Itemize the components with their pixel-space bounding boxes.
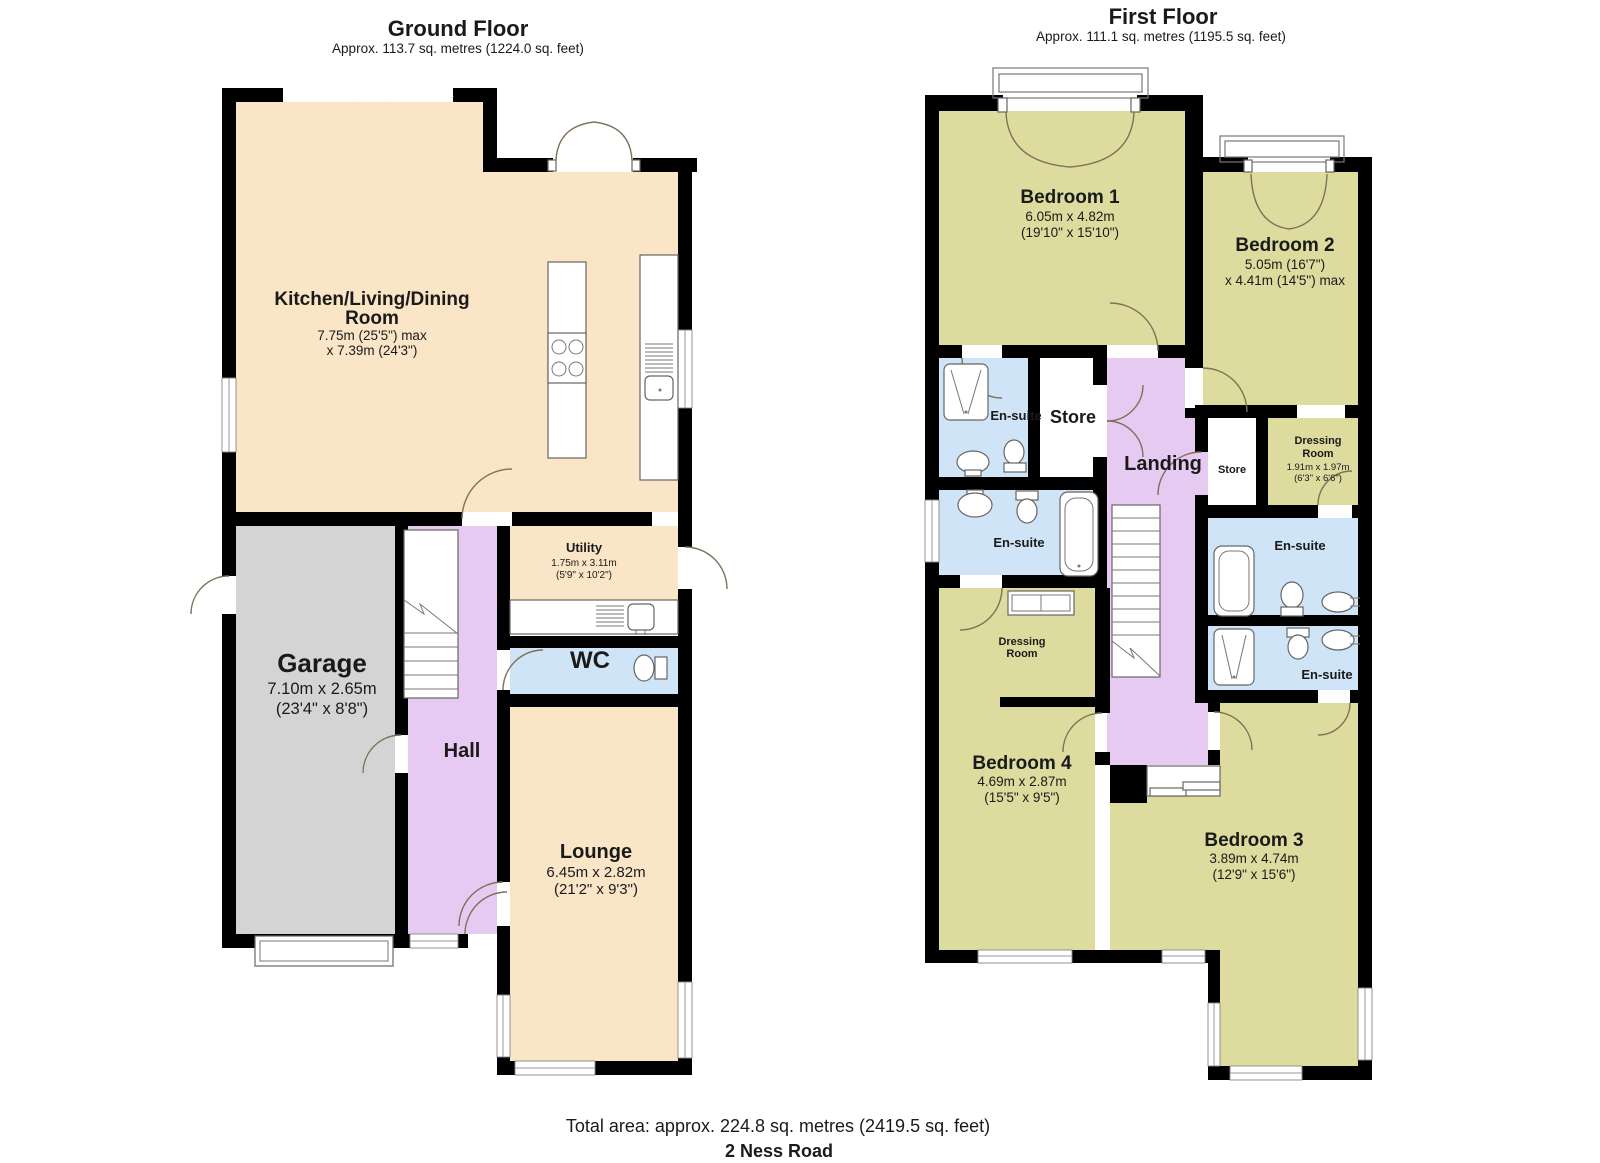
store2-label: Store: [1218, 464, 1246, 476]
ground-floor-plan: Ground Floor Approx. 113.7 sq. metres (1…: [191, 16, 727, 1075]
garage-room-area: [236, 526, 395, 934]
utility-label: Utility: [566, 540, 603, 555]
kitchen-sink-icon: [645, 376, 673, 400]
ensuite1-shower-icon: [944, 364, 988, 420]
total-area-text: Total area: approx. 224.8 sq. metres (24…: [566, 1116, 990, 1136]
dressing1-dim-2: (6'3" x 6'6"): [1294, 473, 1342, 484]
bedroom2-label: Bedroom 2: [1235, 235, 1334, 256]
dressing2-label: Dressing: [998, 636, 1045, 648]
bedroom1-label: Bedroom 1: [1020, 187, 1120, 208]
kitchen-dim-2: x 7.39m (24'3"): [327, 343, 418, 358]
kitchen-label: Kitchen/Living/Dining: [274, 289, 469, 310]
garage-side-door-arc: [191, 576, 229, 614]
utility-back-door-arc: [685, 547, 727, 589]
dressing1-dim-1: 1.91m x 1.97m: [1287, 462, 1350, 473]
garage-dim-1: 7.10m x 2.65m: [267, 680, 376, 698]
first-floor-subtitle: Approx. 111.1 sq. metres (1195.5 sq. fee…: [1036, 29, 1286, 44]
ensuite1-toilet-icon: [1004, 440, 1026, 472]
ensuite2-bath-icon: [1060, 492, 1098, 576]
first-floor-plan: First Floor Approx. 111.1 sq. metres (11…: [925, 4, 1372, 1080]
floorplan-page: Ground Floor Approx. 113.7 sq. metres (1…: [0, 0, 1600, 1163]
ground-floor-stairs: [404, 530, 458, 698]
wc-label: WC: [570, 647, 610, 674]
bedroom2-dim-1: 5.05m (16'7"): [1245, 257, 1325, 272]
bedroom3-dim-1: 3.89m x 4.74m: [1209, 851, 1298, 866]
ensuite4-label: En-suite: [1301, 667, 1352, 682]
ensuite3-bath-icon: [1214, 546, 1254, 616]
bedroom3-left-area: [1110, 803, 1220, 950]
lounge-label: Lounge: [560, 841, 632, 863]
kitchen-label-2: Room: [345, 308, 399, 329]
utility-sink-icon: [628, 604, 654, 630]
ensuite4-shower-icon: [1214, 629, 1254, 685]
garage-dim-2: (23'4" x 8'8"): [276, 700, 368, 718]
kitchen-dim-1: 7.75m (25'5") max: [317, 328, 427, 343]
french-doors-icon: [548, 122, 640, 171]
bedroom3-join-area: [1147, 796, 1220, 806]
hob-icon: [548, 333, 586, 383]
dressing2-label-2: Room: [1006, 648, 1037, 660]
ensuite1-label: En-suite: [990, 408, 1041, 423]
utility-dim-2: (5'9" x 10'2"): [556, 570, 612, 581]
first-floor-stairs: [1112, 505, 1160, 677]
bedroom3-label: Bedroom 3: [1204, 830, 1303, 851]
ground-floor-subtitle: Approx. 113.7 sq. metres (1224.0 sq. fee…: [332, 41, 584, 56]
bedroom4-room-area: [939, 707, 1095, 950]
bedroom2-dim-2: x 4.41m (14'5") max: [1225, 273, 1345, 288]
ensuite4-toilet-icon: [1287, 628, 1309, 659]
dressing1-label-2: Room: [1302, 448, 1333, 460]
bedroom4-dim-2: (15'5" x 9'5"): [984, 790, 1060, 805]
dressing2-opening: [939, 697, 1000, 707]
store2-room-area: [1208, 418, 1256, 505]
bedroom3-room-area: [1220, 703, 1358, 1066]
landing-corridor-area: [1107, 358, 1185, 418]
bedroom2-room-area: [1203, 172, 1358, 405]
ensuite2-toilet-icon: [1016, 491, 1038, 523]
landing-label: Landing: [1124, 453, 1202, 475]
lounge-dim-2: (21'2" x 9'3"): [554, 881, 638, 898]
ensuite2-label: En-suite: [993, 535, 1044, 550]
bedroom3-wardrobe-icon: [1147, 766, 1220, 796]
bedroom3-dim-2: (12'9" x 15'6"): [1212, 867, 1295, 882]
ground-floor-title: Ground Floor: [388, 16, 529, 41]
garage-label: Garage: [277, 648, 367, 678]
dressing2-wardrobe-icon: [1008, 591, 1074, 615]
hall-label: Hall: [444, 740, 481, 762]
bedroom1-dim-2: (19'10" x 15'10"): [1021, 225, 1119, 240]
bedroom4-label: Bedroom 4: [972, 753, 1072, 774]
floorplan-drawing: Ground Floor Approx. 113.7 sq. metres (1…: [0, 0, 1600, 1163]
wc-toilet-icon: [634, 655, 667, 681]
ensuite3-label: En-suite: [1274, 538, 1325, 553]
bedroom4-dim-1: 4.69m x 2.87m: [977, 774, 1066, 789]
address-text: 2 Ness Road: [725, 1141, 833, 1161]
store-label: Store: [1050, 407, 1096, 427]
utility-dim-1: 1.75m x 3.11m: [551, 558, 616, 569]
ensuite3-toilet-icon: [1281, 582, 1303, 616]
first-floor-title: First Floor: [1109, 4, 1218, 29]
bifold-doors-icon: [285, 71, 453, 97]
lounge-dim-1: 6.45m x 2.82m: [546, 864, 645, 881]
bedroom1-dim-1: 6.05m x 4.82m: [1025, 209, 1114, 224]
dressing1-label: Dressing: [1294, 435, 1341, 447]
footer: Total area: approx. 224.8 sq. metres (24…: [566, 1116, 990, 1161]
